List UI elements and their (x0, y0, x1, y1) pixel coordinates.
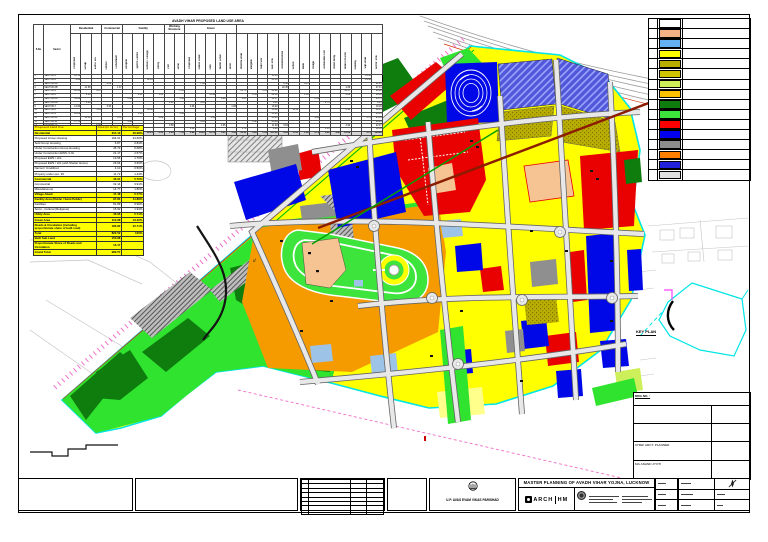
th-el: Water Body (330, 34, 340, 75)
th-el: River (226, 34, 236, 75)
landuse-pct (122, 250, 144, 255)
th-el: Residential (71, 25, 102, 34)
legend-row-gray (649, 140, 751, 150)
div-el (656, 490, 677, 501)
div-el (717, 494, 725, 495)
legend-row-blue-dashed (649, 160, 751, 170)
sector-landuse-table-panel: AVADH VIHAR PROPOSED LAND USE AREA S.NoS… (33, 19, 383, 136)
td-el (649, 19, 658, 29)
tr-el (634, 406, 751, 424)
td-el (649, 140, 658, 150)
legend-row-unshaded (649, 19, 751, 29)
td-el (658, 69, 683, 79)
legend-row-green (649, 109, 751, 119)
keyplan-row-label (634, 424, 712, 442)
landuse-area: 989.57 (97, 250, 122, 255)
td-el (712, 442, 751, 461)
legend-swatch-olive-hatch (659, 60, 681, 69)
tr-el: CHIEF ARCT. PLANNER (634, 442, 751, 461)
td-el (683, 59, 751, 69)
td-el: 1.38 (299, 131, 309, 135)
td-el (309, 510, 351, 514)
div-el (658, 483, 666, 484)
th-el: Working Structure (164, 25, 185, 34)
td-el (649, 109, 658, 119)
th-el: Bank (299, 34, 309, 75)
span-el: Utility (158, 62, 161, 69)
legend-swatch-blue (659, 130, 681, 139)
archohm-logo: ARCHHM (519, 488, 575, 511)
tr-el: ProposedGroupEWS / LIGOfficesConvenientH… (34, 34, 383, 75)
th-el: Village (309, 34, 319, 75)
rect-el (460, 310, 463, 312)
td-el (658, 39, 683, 49)
th-el: Convenient (112, 34, 122, 75)
tr-el: Grand Total989.57 (34, 250, 144, 255)
div-el (589, 502, 617, 503)
revision-block (300, 478, 385, 511)
th-el: Commercial (102, 25, 123, 34)
keyplan-row-label: CHIEF ARCT. PLANNER (634, 442, 712, 461)
div-el (622, 499, 652, 500)
tbody-el (649, 19, 751, 181)
td-el (658, 19, 683, 29)
legend-swatch-orange (659, 151, 681, 160)
td-el (649, 69, 658, 79)
div-el (681, 505, 691, 506)
td-el (683, 150, 751, 160)
circle-el (520, 298, 524, 302)
th-el: Sector Total (372, 34, 383, 75)
landuse-pct (122, 241, 144, 249)
thead-el: S.NoSectorResidentialCommercialFacilityW… (34, 25, 383, 75)
legend-swatch-yellow-green (659, 80, 681, 89)
legend-row-blue (649, 130, 751, 140)
drawing-sheet: d AVADH VIHAR PROPOSED LAND USE AREA S.N… (0, 0, 768, 542)
path-el (498, 59, 556, 110)
strip-right-grid (678, 478, 750, 511)
td-el (658, 49, 683, 59)
td-el (683, 19, 751, 29)
td-el (350, 510, 367, 514)
th-el: Group (81, 34, 91, 75)
titleblock-notes (575, 488, 654, 511)
south-red-tick (424, 436, 426, 441)
landuse-label: Roads & Circulation (including proportio… (34, 223, 97, 231)
td-el: 0.96 (247, 131, 257, 135)
td-el (658, 160, 683, 170)
td-el (658, 170, 683, 180)
th-el: Sub Total (268, 34, 278, 75)
legend-swatch-blue-dashed (659, 161, 681, 170)
legend-row-red (649, 119, 751, 129)
td-el (683, 170, 751, 180)
td-el: 22.29 (341, 131, 351, 135)
rect-el (610, 260, 613, 262)
rect-el (430, 355, 433, 357)
legend-swatch-unshaded (659, 19, 681, 28)
td-el: 7.14 (174, 131, 184, 135)
div-el (679, 500, 715, 510)
tr-el: S.NoSectorResidentialCommercialFacilityW… (34, 25, 383, 34)
td-el (649, 59, 658, 69)
div-el (656, 479, 677, 490)
th-el: Share Pro-rata (341, 34, 351, 75)
td-el: 3.44 (154, 131, 164, 135)
div-el: ARCHHM (519, 488, 654, 511)
div-el (715, 500, 750, 510)
rect-el (308, 252, 311, 254)
td-el: 2.05 (258, 131, 268, 135)
div-el (658, 505, 666, 506)
rect-el (596, 178, 599, 180)
legend-row-orange (649, 150, 751, 160)
sector-landuse-table: S.NoSectorResidentialCommercialFacilityW… (33, 24, 383, 136)
div-el (679, 479, 749, 490)
strip-blank-2 (135, 478, 298, 511)
td-el (658, 79, 683, 89)
path-el (627, 249, 643, 291)
legend-row-light-blue (649, 39, 751, 49)
td-el: 22.24 (143, 131, 153, 135)
td-el (649, 79, 658, 89)
td-el (712, 406, 751, 424)
span-el: Railway (355, 60, 358, 69)
th-el: Buffer Green (216, 34, 226, 75)
td-el (712, 424, 751, 442)
div-el (715, 479, 750, 489)
th-el: Facility (122, 25, 164, 34)
td-el (351, 131, 361, 135)
legend-swatch-yellow (659, 50, 681, 59)
landuse-pct: 22.71% (122, 223, 144, 231)
rect-el (300, 330, 303, 332)
div-el (715, 490, 750, 500)
td-el (683, 130, 751, 140)
legend-swatch-amber (659, 90, 681, 99)
landuse-label: Proportionate Share of Roads and Circula… (34, 241, 97, 249)
keyplan-row-label: M/s ANAND JYOTI (634, 461, 712, 480)
div-el (679, 490, 749, 501)
circle-el (389, 265, 399, 275)
div-el (589, 489, 619, 510)
tr-el: DRG NO. : (634, 393, 751, 406)
td-el: 16.23 (195, 131, 205, 135)
th-el: Green (185, 25, 237, 34)
th-el: Built Site (258, 34, 268, 75)
span-el: Proposed (189, 57, 192, 69)
td-el (649, 150, 658, 160)
td-el (683, 109, 751, 119)
th-el: Park (206, 34, 216, 75)
legend-row-peach (649, 29, 751, 39)
drg-no-label: DRG NO. : (634, 393, 751, 406)
archohm-text-1: ARCH (533, 497, 553, 503)
path-el (310, 344, 333, 363)
keyplan-title: KEY PLAN (636, 329, 656, 336)
th-el: EWS / LIG (91, 34, 101, 75)
th-el: Proposed (185, 34, 195, 75)
td-el: 20.76 (206, 131, 216, 135)
th-el: Plot (164, 34, 174, 75)
keyplan-table: DRG NO. : CHIEF ARCT. PLANNERM/s ANAND J… (633, 392, 751, 480)
div-el (679, 500, 749, 510)
legend-row-gray-hatch (649, 170, 751, 180)
path-el (470, 484, 475, 489)
legend-swatch-gray-hatch (659, 171, 681, 180)
div-el (622, 502, 642, 503)
div-el (658, 494, 666, 495)
td-el (683, 79, 751, 89)
legend-row-yellow (649, 49, 751, 59)
archohm-logo-icon (525, 496, 532, 503)
span-el: Public Green (199, 54, 202, 69)
div-el (679, 490, 715, 500)
span-el: Offices (106, 61, 109, 69)
th-el: Internal Road (237, 34, 247, 75)
rect-el (330, 300, 333, 302)
stamp-icon (577, 491, 586, 500)
legend-swatch-dark-green (659, 100, 681, 109)
rect-el (280, 240, 283, 242)
revision-table (301, 479, 384, 515)
div-el (717, 505, 723, 506)
circle-el (610, 296, 614, 300)
path-el (524, 296, 559, 325)
legend-row-olive-hatch-2 (649, 69, 751, 79)
th-el: Railway (351, 34, 361, 75)
td-el (683, 49, 751, 59)
rect-el (520, 380, 523, 382)
span-el: Built Site (261, 58, 264, 69)
td-el (683, 69, 751, 79)
th-el: Unconstructed (278, 34, 288, 75)
parishad-emblem-icon (468, 481, 478, 492)
td-el (658, 99, 683, 109)
th-el: Road (174, 34, 184, 75)
td-el: 3.34 (216, 131, 226, 135)
span-el: Plot (168, 64, 171, 69)
tr-el: Roads & Circulation (including proportio… (34, 223, 144, 231)
td-el: 4.86 (330, 131, 340, 135)
rect-el (565, 250, 568, 252)
th-el: Achievable Plot (320, 34, 330, 75)
div-el (681, 483, 691, 484)
path-el (480, 266, 504, 292)
td-el (658, 59, 683, 69)
span-el: Group (85, 62, 88, 70)
project-title: MASTER PLANNING OF AVADH VIHAR YOJNA, LU… (519, 479, 654, 488)
span-el: Village (313, 61, 316, 69)
rect-el (530, 230, 533, 232)
legend-swatch-peach (659, 29, 681, 38)
th-el: School (289, 34, 299, 75)
td-el (683, 160, 751, 170)
span-el: School (293, 61, 296, 69)
td-el: 1.88 (320, 131, 330, 135)
legend-row-dark-green (649, 99, 751, 109)
td-el: 2.29 (164, 131, 174, 135)
path-el (556, 369, 583, 398)
circle-el (372, 224, 376, 228)
span-el: Buffer Green (220, 54, 223, 69)
legend-row-olive-hatch (649, 59, 751, 69)
rect-el (590, 170, 593, 172)
span-el: Bank (303, 63, 306, 69)
td-el: 26.32 (237, 131, 247, 135)
td-el (683, 140, 751, 150)
title-strip: U.P. AVAS EVAM VIKAS PARISHAD MASTER PLA… (18, 478, 750, 511)
th-el: Public Green (195, 34, 205, 75)
tbody-el: Residential304.1936.98%Proposed Group Ho… (34, 131, 144, 255)
span-el: Marginal (251, 59, 254, 69)
archohm-text-2: HM (558, 497, 569, 503)
td-el (712, 461, 751, 480)
strip-blank-3 (387, 478, 427, 511)
circle-el (456, 362, 460, 366)
td-el (302, 510, 309, 514)
strip-blank-1 (18, 478, 133, 511)
rect-el (610, 320, 613, 322)
td-el (683, 89, 751, 99)
td-el (649, 119, 658, 129)
td-el (649, 170, 658, 180)
span-el: Proposed (74, 57, 77, 69)
legend-swatch-green (659, 110, 681, 119)
td-el (649, 99, 658, 109)
th-el: Hospital (122, 34, 132, 75)
tr-el: Proportionate Share of Roads and Circula… (34, 241, 144, 249)
proposed-landuse-panel: Proposed Land Use Area (in Acre) Percent… (33, 125, 143, 256)
span-el: EWS / LIG (95, 57, 98, 69)
rect-el (476, 146, 479, 148)
landuse-label: Grand Total (34, 250, 97, 255)
td-el: 1.08 (226, 131, 236, 135)
div-el (589, 496, 619, 497)
span-el: Achievable Plot (324, 50, 327, 69)
th-el: School / College (143, 34, 153, 75)
div-el (589, 499, 613, 500)
path-el (530, 259, 558, 287)
legend-row-amber (649, 89, 751, 99)
tr-el (634, 424, 751, 442)
td-el (683, 119, 751, 129)
proposed-landuse-table: Proposed Land Use Area (in Acre) Percent… (33, 125, 144, 256)
td-el (658, 119, 683, 129)
span-el: Sub Total (272, 58, 275, 69)
span-el: Water Body (334, 55, 337, 69)
div-el (681, 494, 693, 495)
landuse-area: 16.17 (97, 241, 122, 249)
legend-swatch-red (659, 120, 681, 129)
rect-el (354, 280, 363, 287)
td-el (658, 109, 683, 119)
div-el (622, 489, 652, 510)
span-el: Slip Road (365, 57, 368, 69)
archohm-logo-bar (555, 496, 556, 504)
td-el (649, 89, 658, 99)
span-el: Hospital (126, 59, 129, 69)
circle-el (558, 230, 562, 234)
td-el (658, 29, 683, 39)
rect-el (470, 140, 473, 142)
legend-row-yellow-green (649, 79, 751, 89)
td-el: 321.38 (268, 131, 278, 135)
td-el (649, 160, 658, 170)
titleblock: MASTER PLANNING OF AVADH VIHAR YOJNA, LU… (518, 478, 655, 511)
div-el (656, 500, 677, 510)
td-el: 0.75 (361, 131, 371, 135)
td-el: 17.65 (289, 131, 299, 135)
th-el: Sports Centre (133, 34, 143, 75)
th-el: Proposed (71, 34, 81, 75)
path-el (455, 243, 483, 272)
td-el: 6.79 (309, 131, 319, 135)
legend-panel (648, 18, 750, 181)
tbody-el: DRG NO. : CHIEF ARCT. PLANNERM/s ANAND J… (634, 393, 751, 480)
th-el: Sector (44, 25, 71, 75)
div-el (679, 479, 715, 489)
td-el (649, 39, 658, 49)
td-el: 6.84 (278, 131, 288, 135)
circle-el (430, 296, 434, 300)
agency-name: U.P. AVAS EVAM VIKAS PARISHAD (430, 498, 515, 502)
rect-el (350, 160, 353, 162)
td-el: 383.99 (372, 131, 383, 135)
span-el: Unconstructed (282, 51, 285, 69)
span-el: Park (210, 64, 213, 69)
span-el: Sector Total (376, 55, 379, 69)
path-el (624, 158, 642, 184)
strip-small-cells (655, 478, 678, 511)
td-el: 3.98 (185, 131, 195, 135)
td-el (649, 130, 658, 140)
rect-el (316, 270, 319, 272)
td-el (658, 150, 683, 160)
td-el (683, 29, 751, 39)
legend-swatch-olive-hatch-2 (659, 70, 681, 79)
th-el: Marginal (247, 34, 257, 75)
tr-el (302, 510, 384, 514)
th-el: Offices (102, 34, 112, 75)
td-el (367, 510, 384, 514)
div-el (622, 496, 648, 497)
legend-swatch-gray (659, 140, 681, 149)
td-el (683, 99, 751, 109)
td-el (658, 89, 683, 99)
span-el: School / College (147, 50, 150, 69)
landuse-area: 186.80 (97, 223, 122, 231)
keyplan-row-label (634, 406, 712, 424)
span-el: Sports Centre (137, 52, 140, 69)
th-el (237, 25, 383, 34)
span-el: River (230, 63, 233, 69)
td-el (649, 29, 658, 39)
legend-swatch-light-blue (659, 39, 681, 48)
span-el: Road (178, 63, 181, 69)
tr-el: M/s ANAND JYOTI (634, 461, 751, 480)
agency-block: U.P. AVAS EVAM VIKAS PARISHAD (429, 478, 516, 511)
th-el: Slip Road (361, 34, 371, 75)
span-el: Internal Road (241, 53, 244, 69)
td-el (658, 130, 683, 140)
span-el: Convenient (116, 55, 119, 69)
td-el (658, 140, 683, 150)
span-el: Share Pro-rata (345, 52, 348, 69)
td-el (649, 49, 658, 59)
legend-table (648, 18, 751, 181)
th-el: Utility (154, 34, 164, 75)
